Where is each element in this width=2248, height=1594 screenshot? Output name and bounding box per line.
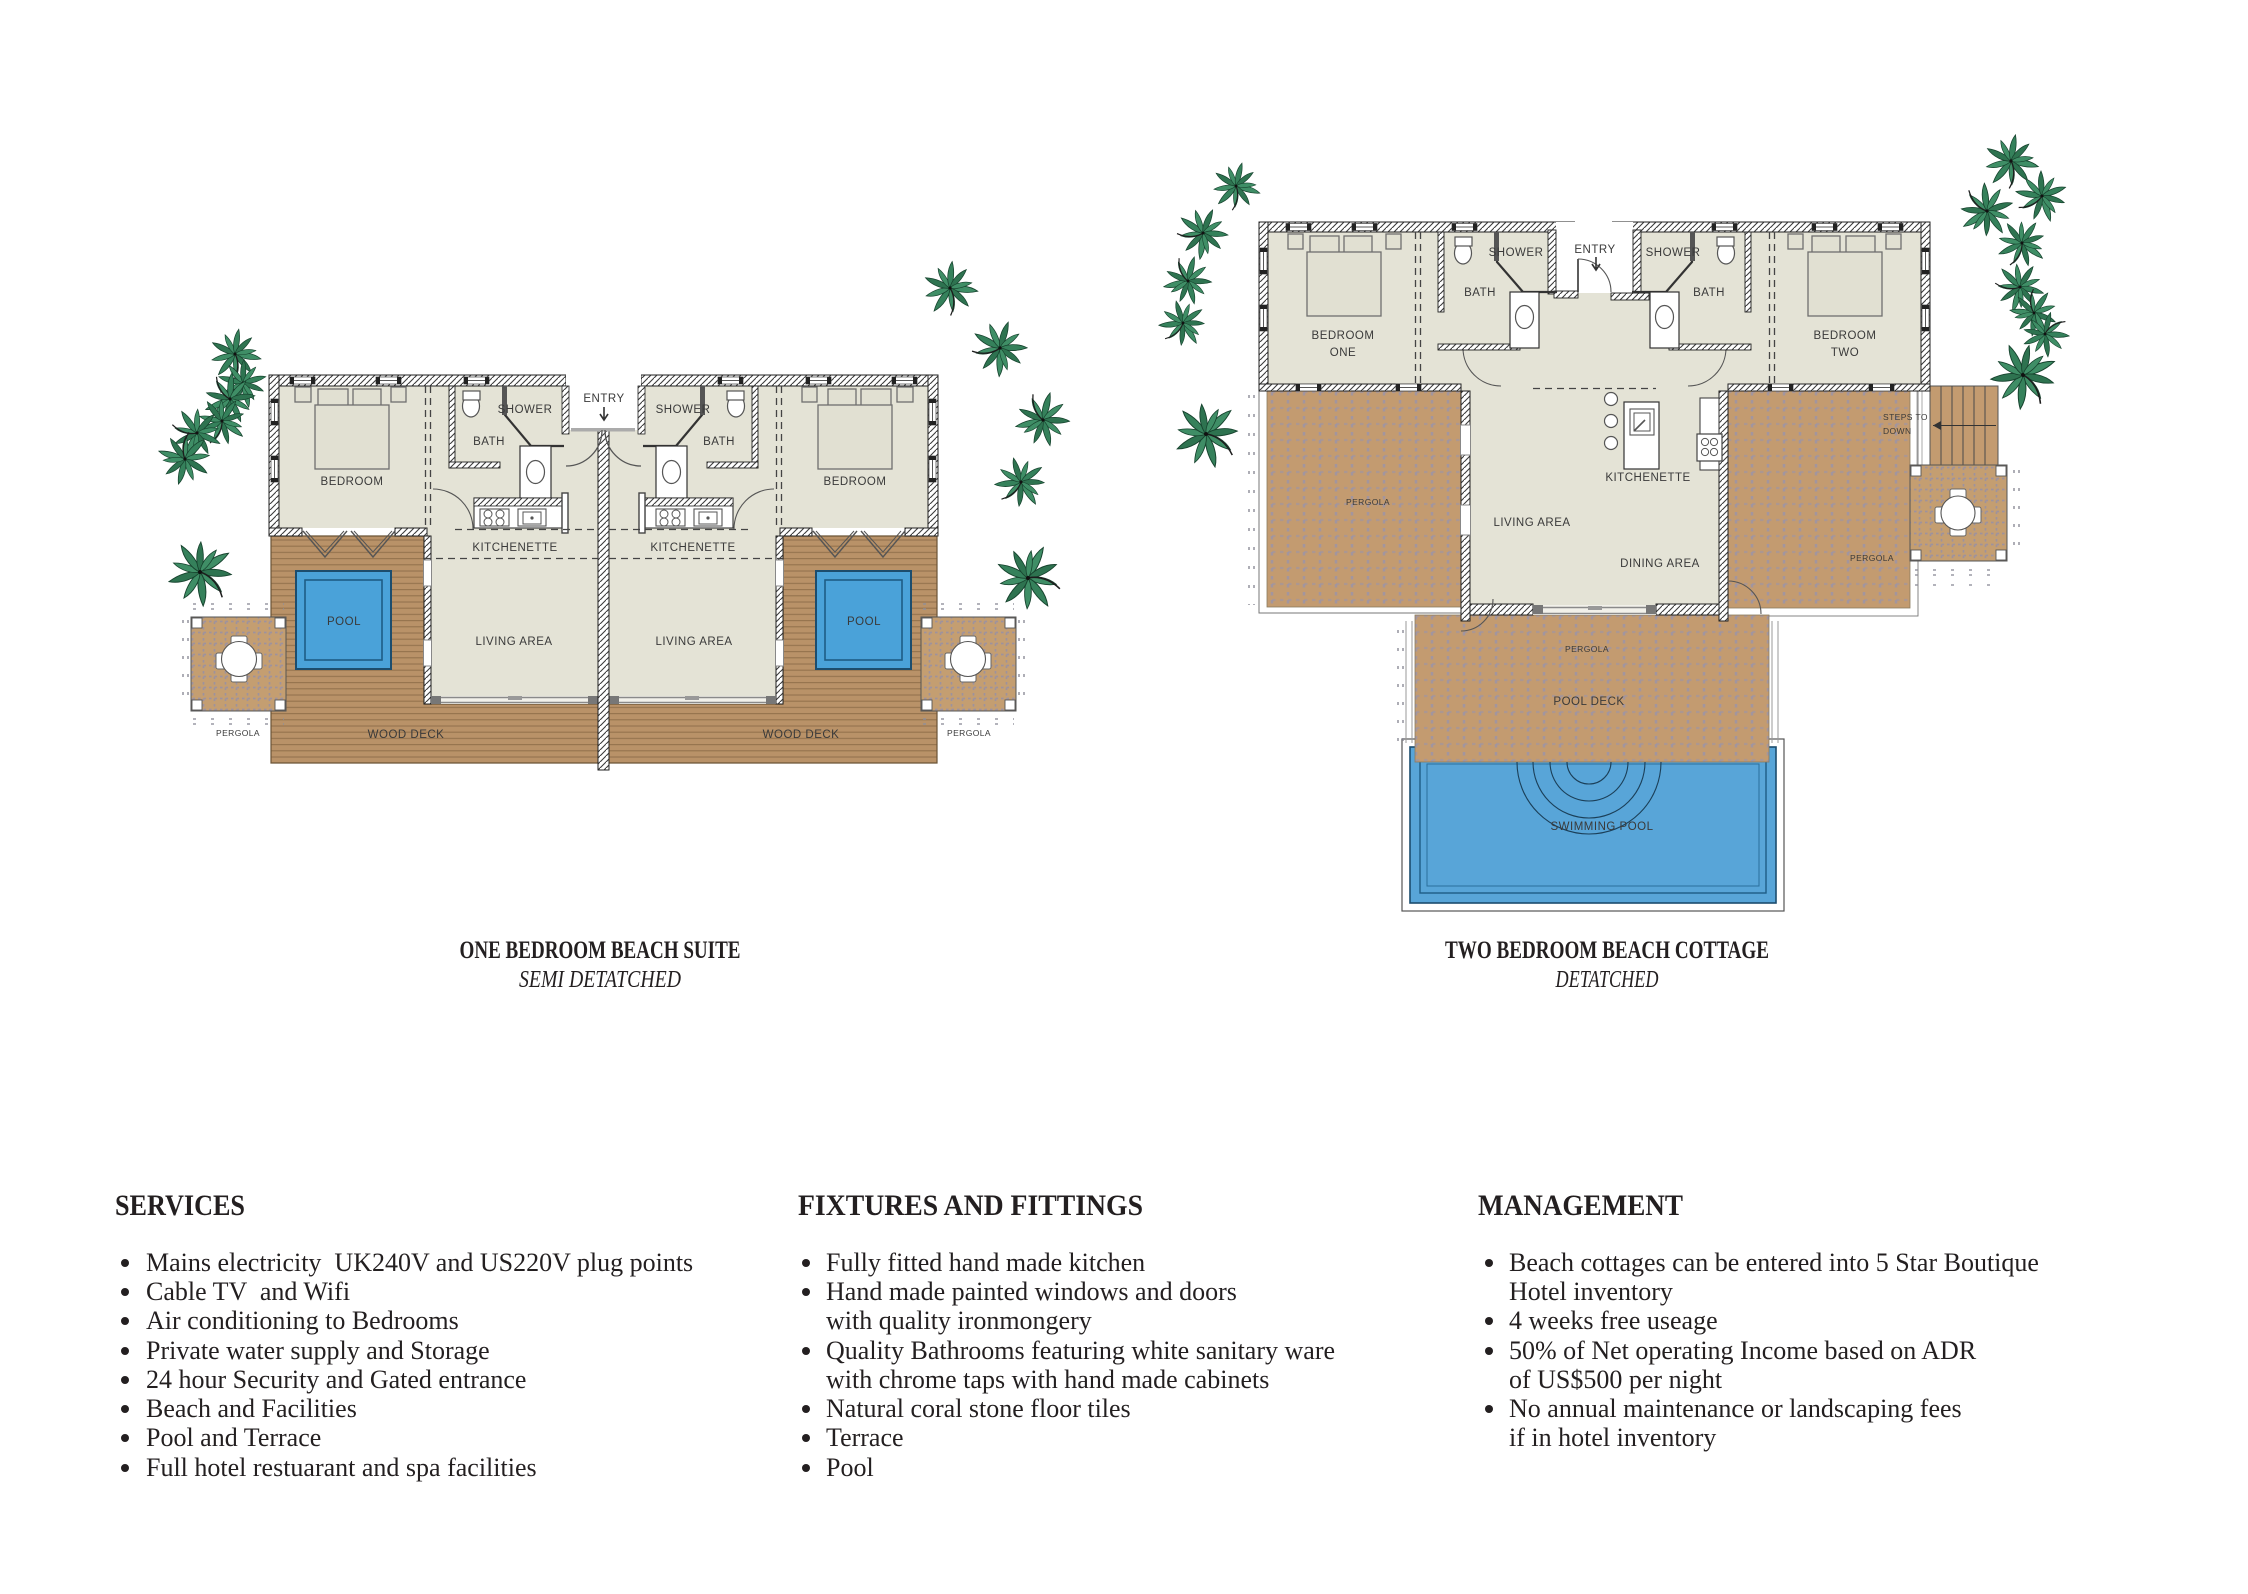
svg-text:SHOWER: SHOWER <box>1646 247 1701 259</box>
svg-text:Natural coral stone floor tile: Natural coral stone floor tiles <box>826 1394 1131 1423</box>
svg-text:24 hour Security and Gated ent: 24 hour Security and Gated entrance <box>146 1365 526 1394</box>
svg-text:SEMI DETATCHED: SEMI DETATCHED <box>519 967 681 993</box>
svg-text:PERGOLA: PERGOLA <box>1850 553 1894 563</box>
svg-text:POOL: POOL <box>847 616 881 628</box>
svg-text:Hotel inventory: Hotel inventory <box>1509 1277 1673 1306</box>
svg-text:with chrome taps with hand mad: with chrome taps with hand made cabinets <box>826 1365 1269 1394</box>
svg-text:4 weeks free useage: 4 weeks free useage <box>1509 1306 1718 1335</box>
svg-text:ENTRY: ENTRY <box>1574 244 1615 256</box>
svg-text:No annual maintenance or lands: No annual maintenance or landscaping fee… <box>1509 1394 1962 1423</box>
svg-text:with quality ironmongery: with quality ironmongery <box>826 1306 1092 1335</box>
svg-text:TWO BEDROOM BEACH COTTAGE: TWO BEDROOM BEACH COTTAGE <box>1445 935 1769 964</box>
svg-text:MANAGEMENT: MANAGEMENT <box>1478 1189 1683 1222</box>
svg-text:POOL: POOL <box>327 616 361 628</box>
svg-text:PERGOLA: PERGOLA <box>1565 644 1609 654</box>
svg-text:LIVING AREA: LIVING AREA <box>655 636 732 648</box>
svg-text:of US$500 per night: of US$500 per night <box>1509 1365 1723 1394</box>
svg-text:KITCHENETTE: KITCHENETTE <box>472 542 557 554</box>
svg-text:BEDROOM: BEDROOM <box>1312 330 1375 342</box>
svg-text:PERGOLA: PERGOLA <box>1346 497 1390 507</box>
svg-text:Fully fitted hand made kitchen: Fully fitted hand made kitchen <box>826 1248 1145 1277</box>
svg-text:KITCHENETTE: KITCHENETTE <box>650 542 735 554</box>
svg-text:PERGOLA: PERGOLA <box>216 728 260 738</box>
svg-text:BATH: BATH <box>703 436 735 448</box>
svg-text:BATH: BATH <box>473 436 505 448</box>
svg-text:Full hotel restuarant and spa: Full hotel restuarant and spa facilities <box>146 1453 537 1482</box>
svg-text:Beach and Facilities: Beach and Facilities <box>146 1394 357 1423</box>
svg-text:ONE BEDROOM BEACH SUITE: ONE BEDROOM BEACH SUITE <box>460 935 741 964</box>
svg-text:TWO: TWO <box>1831 347 1859 359</box>
svg-text:WOOD DECK: WOOD DECK <box>763 729 840 741</box>
svg-text:Cable TV and Wifi: Cable TV and Wifi <box>146 1277 350 1306</box>
svg-text:FIXTURES AND FITTINGS: FIXTURES AND FITTINGS <box>798 1189 1143 1222</box>
svg-text:50% of Net operating Income ba: 50% of Net operating Income based on ADR <box>1509 1336 1977 1365</box>
svg-text:WOOD DECK: WOOD DECK <box>368 729 445 741</box>
svg-text:PERGOLA: PERGOLA <box>947 728 991 738</box>
svg-text:SWIMMING POOL: SWIMMING POOL <box>1551 821 1654 833</box>
svg-text:LIVING AREA: LIVING AREA <box>475 636 552 648</box>
svg-text:Quality Bathrooms featuring wh: Quality Bathrooms featuring white sanita… <box>826 1336 1335 1365</box>
svg-text:Terrace: Terrace <box>826 1423 904 1452</box>
svg-text:BATH: BATH <box>1693 287 1725 299</box>
svg-text:STEPS TO: STEPS TO <box>1883 412 1928 422</box>
svg-text:BEDROOM: BEDROOM <box>1814 330 1877 342</box>
svg-text:DETATCHED: DETATCHED <box>1555 967 1659 993</box>
svg-text:LIVING AREA: LIVING AREA <box>1493 517 1570 529</box>
svg-text:BATH: BATH <box>1464 287 1496 299</box>
svg-text:BEDROOM: BEDROOM <box>321 476 384 488</box>
svg-text:POOL DECK: POOL DECK <box>1553 696 1624 708</box>
svg-text:Mains electricity UK240V and: Mains electricity UK240V and US220V plug… <box>146 1248 693 1277</box>
svg-text:if in hotel inventory: if in hotel inventory <box>1509 1423 1716 1452</box>
svg-text:Beach cottages can be entered: Beach cottages can be entered into 5 Sta… <box>1509 1248 2039 1277</box>
svg-text:Pool and Terrace: Pool and Terrace <box>146 1423 321 1452</box>
svg-text:SHOWER: SHOWER <box>498 404 553 416</box>
svg-text:Private water supply and Stora: Private water supply and Storage <box>146 1336 490 1365</box>
svg-text:Air conditioning to Bedrooms: Air conditioning to Bedrooms <box>146 1306 459 1335</box>
svg-text:ENTRY: ENTRY <box>583 393 624 405</box>
svg-text:Hand made painted windows and: Hand made painted windows and doors <box>826 1277 1237 1306</box>
svg-text:BEDROOM: BEDROOM <box>824 476 887 488</box>
svg-text:SHOWER: SHOWER <box>656 404 711 416</box>
svg-text:ONE: ONE <box>1330 347 1356 359</box>
svg-text:SHOWER: SHOWER <box>1489 247 1544 259</box>
svg-text:Pool: Pool <box>826 1453 874 1482</box>
svg-text:KITCHENETTE: KITCHENETTE <box>1605 472 1690 484</box>
svg-text:DINING AREA: DINING AREA <box>1620 558 1700 570</box>
svg-text:SERVICES: SERVICES <box>115 1189 245 1222</box>
svg-text:DOWN: DOWN <box>1883 426 1912 436</box>
